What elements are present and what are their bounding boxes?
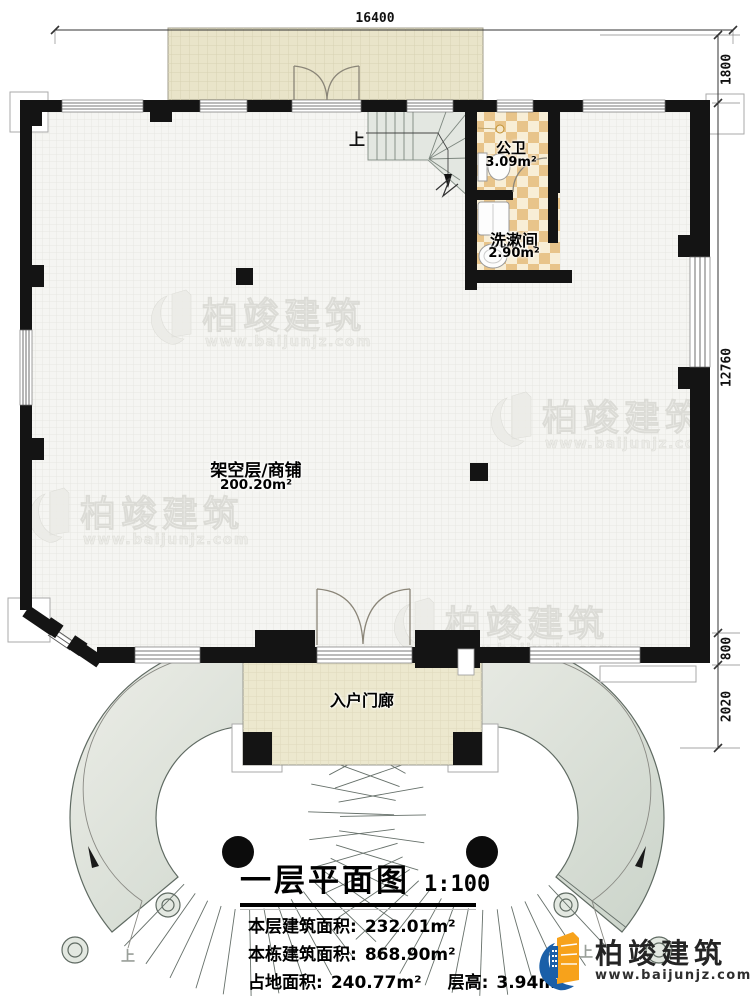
column	[236, 268, 253, 285]
floor-plan-sheet: 柏竣建筑 www.baijunjz.com 柏竣建筑 www.baijunjz.…	[0, 0, 750, 1005]
building-area-row: 本栋建筑面积:868.90m²	[248, 940, 456, 965]
brand-name: 柏竣建筑	[595, 939, 750, 968]
dim-terrace-depth: 1800	[720, 42, 735, 98]
land-area-row: 占地面积:240.77m²层高:3.94m	[248, 968, 556, 993]
room-label-porch: 入户门廊	[310, 687, 414, 711]
dim-porch-depth: 2020	[720, 679, 735, 735]
land-area-value: 240.77m²	[331, 973, 422, 993]
shop-floor	[22, 102, 708, 661]
title-underline	[240, 903, 476, 907]
brand-logo-icon	[537, 930, 589, 992]
column	[470, 463, 488, 481]
dim-building-depth: 12760	[720, 332, 735, 404]
porch-column	[243, 732, 272, 765]
dim-wall-offset: 800	[720, 623, 735, 675]
building-area-label: 本栋建筑面积:	[248, 945, 357, 965]
porch-side-window	[458, 649, 474, 675]
room-area-shop: 200.20m²	[180, 477, 332, 493]
floor-area-label: 本层建筑面积:	[248, 917, 357, 937]
watermark-brand: 柏竣建筑	[80, 494, 244, 535]
room-area-washroom: 2.90m²	[481, 246, 547, 261]
building-area-value: 868.90m²	[365, 945, 456, 965]
watermark-brand: 柏竣建筑	[202, 296, 366, 337]
plan-title: 一层平面图	[240, 855, 410, 900]
floor-area-row: 本层建筑面积:232.01m²	[248, 912, 456, 937]
floor-area-value: 232.01m²	[365, 917, 456, 937]
up-label-interior-stair: 上	[349, 126, 365, 150]
watermark-brand: 柏竣建筑	[542, 398, 706, 439]
plan-scale: 1:100	[424, 872, 490, 897]
watermark-url: www.baijunjz.com	[545, 436, 712, 452]
porch-column	[453, 732, 482, 765]
title-underline-thin	[240, 909, 476, 910]
title-block: 一层平面图 1:100	[240, 855, 540, 910]
floor-drain	[496, 125, 504, 133]
watermark-url: www.baijunjz.com	[205, 334, 372, 350]
room-area-toilet: 3.09m²	[481, 155, 541, 170]
height-label: 层高:	[448, 973, 489, 993]
brand-url: www.baijunjz.com	[595, 968, 750, 983]
dim-top-width: 16400	[340, 11, 410, 26]
up-label-left-stair: 上	[121, 946, 135, 966]
brand-logo: 柏竣建筑 www.baijunjz.com	[537, 930, 750, 992]
watermark-url: www.baijunjz.com	[83, 532, 250, 548]
land-area-label: 占地面积:	[248, 973, 323, 993]
